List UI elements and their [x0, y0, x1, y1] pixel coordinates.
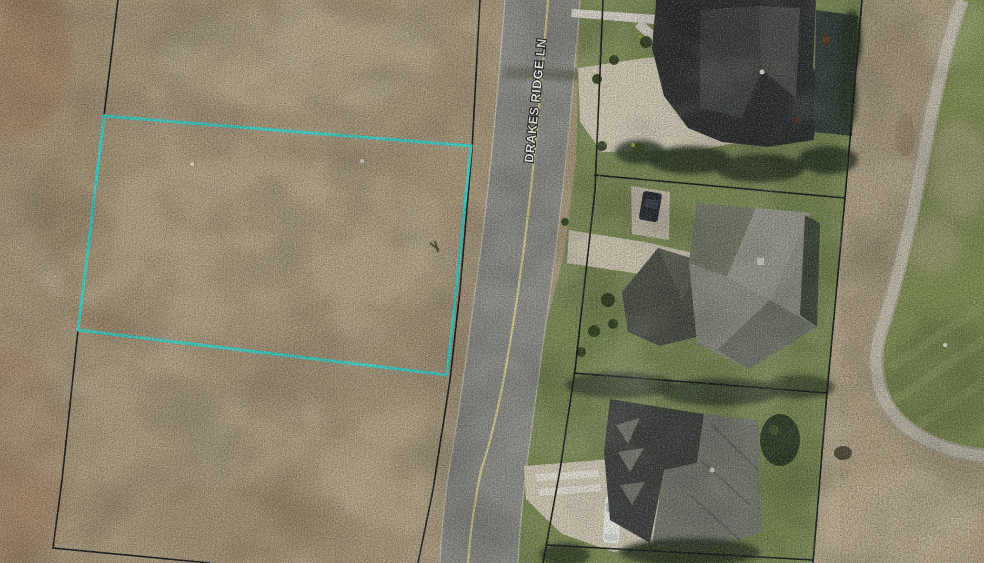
shrub: [834, 446, 852, 460]
aerial-map[interactable]: DRAKES RIDGE LN: [0, 0, 984, 563]
ground-speck: [360, 159, 364, 163]
ground-speck: [190, 162, 194, 166]
tree: [760, 414, 800, 466]
aerial-map-view[interactable]: DRAKES RIDGE LN: [0, 0, 984, 563]
